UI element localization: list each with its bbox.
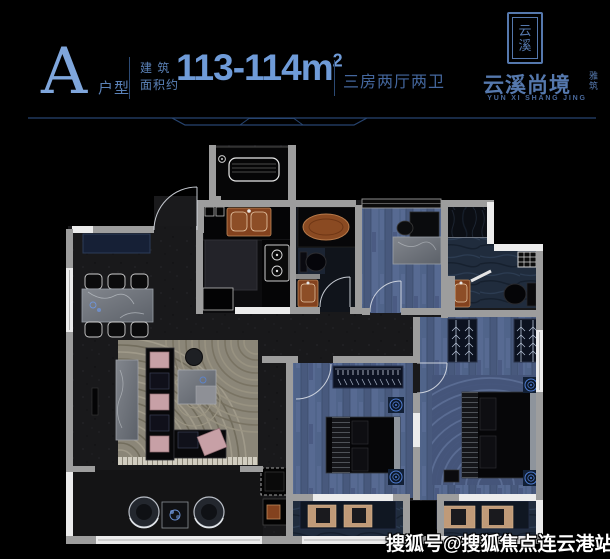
fridge xyxy=(203,288,233,310)
lounge-chair-icon xyxy=(194,497,224,528)
desk-chair xyxy=(397,221,413,235)
closet-floor xyxy=(448,205,487,238)
stove-icon xyxy=(265,245,289,281)
dining-table xyxy=(82,289,153,322)
toilet2-icon xyxy=(504,283,536,306)
master-bed xyxy=(462,392,538,478)
bedroom3-balcony xyxy=(300,501,396,529)
ceiling-light-icon xyxy=(525,379,537,391)
dining-chair-row-top xyxy=(85,274,148,289)
side-stool xyxy=(186,349,203,366)
kitchen-sink-icon xyxy=(227,208,271,236)
entry-threshold xyxy=(154,196,197,226)
ceiling-light-icon xyxy=(390,399,402,411)
wardrobe-left xyxy=(448,319,477,362)
kitchen-island xyxy=(205,240,257,290)
watermark: 搜狐号@搜狐焦点连云港站 xyxy=(386,529,610,556)
desk xyxy=(410,212,439,238)
master-balcony xyxy=(437,501,529,529)
dining-chair-row-bottom xyxy=(85,322,148,337)
sideboard xyxy=(83,234,150,253)
water-heater-icon xyxy=(267,505,280,519)
ceiling-light-icon xyxy=(525,472,537,484)
balcony-table xyxy=(162,502,188,528)
nightstand xyxy=(444,470,459,482)
closet-hanging xyxy=(333,366,403,388)
toilet-icon xyxy=(300,252,326,272)
utility-balcony-floor xyxy=(214,147,294,203)
bedroom3-bed xyxy=(326,417,400,473)
header-rule xyxy=(28,118,596,125)
coffee-table xyxy=(178,370,216,404)
ceiling-light-icon xyxy=(390,471,402,483)
floorplan-card: A 户型 建 筑 面积约 113-114m2 三房两厅两卫 云 溪 云溪尚境 雅… xyxy=(0,0,610,559)
dining-area xyxy=(82,234,153,337)
floor-plan xyxy=(0,0,610,559)
living-balcony xyxy=(129,497,224,528)
bathtub-icon xyxy=(303,214,349,240)
bathroom1-sink-icon xyxy=(298,280,318,307)
tv-icon xyxy=(92,388,98,415)
bedroom2-table xyxy=(393,237,441,264)
lounge-chair-icon xyxy=(129,497,159,528)
bedroom2-window xyxy=(362,199,441,208)
